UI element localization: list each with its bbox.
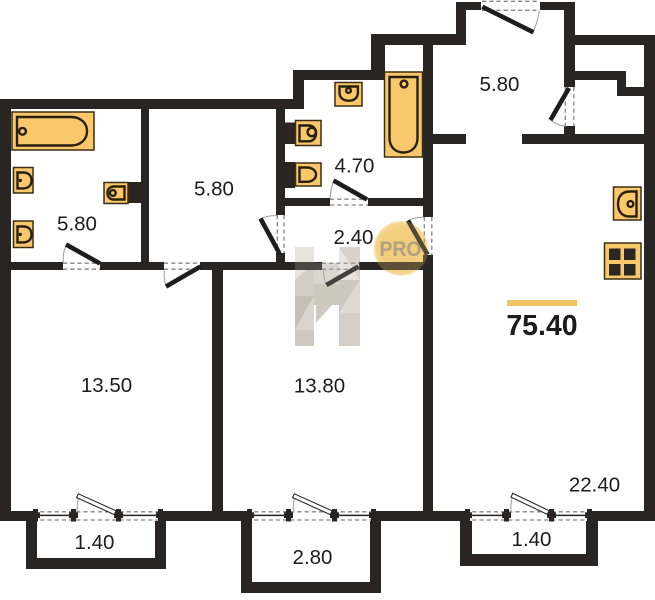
svg-text:75.40: 75.40 [506, 310, 577, 342]
svg-text:5.80: 5.80 [480, 73, 520, 96]
svg-text:5.80: 5.80 [194, 178, 234, 201]
svg-text:2.40: 2.40 [334, 226, 374, 249]
svg-text:4.70: 4.70 [335, 155, 375, 178]
svg-text:2.80: 2.80 [293, 546, 333, 569]
svg-text:22.40: 22.40 [569, 474, 620, 497]
svg-text:1.40: 1.40 [512, 528, 552, 551]
svg-text:5.80: 5.80 [57, 213, 97, 236]
svg-text:1.40: 1.40 [75, 531, 115, 554]
svg-text:13.50: 13.50 [81, 374, 132, 397]
svg-text:13.80: 13.80 [294, 375, 345, 398]
